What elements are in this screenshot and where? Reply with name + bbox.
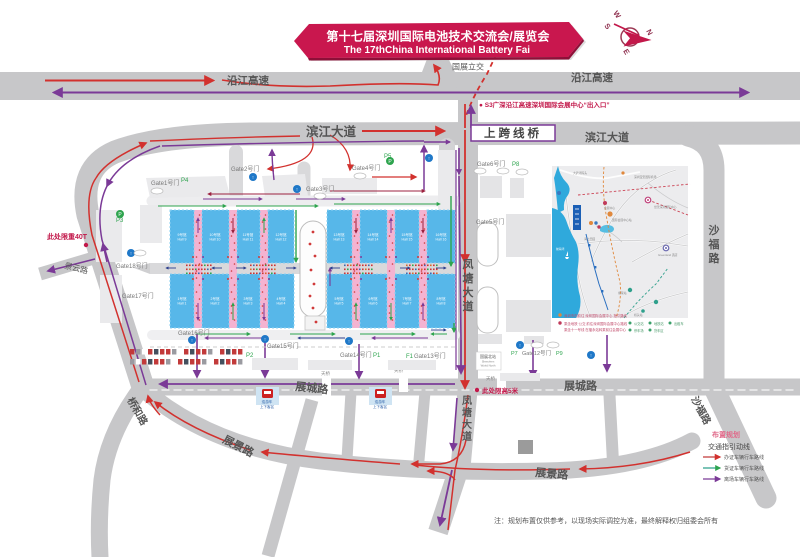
- svg-text:上下客区: 上下客区: [260, 404, 275, 409]
- svg-text:道: 道: [462, 430, 472, 443]
- svg-text:货证车辆行车路线: 货证车辆行车路线: [724, 465, 764, 472]
- svg-text:Gate18号门: Gate18号门: [116, 262, 148, 270]
- svg-text:沿江高速: 沿江高速: [227, 74, 269, 87]
- svg-text:Hall 2: Hall 2: [211, 302, 220, 306]
- svg-text:福: 福: [708, 237, 720, 251]
- svg-text:大: 大: [463, 285, 474, 299]
- svg-text:Hall 15: Hall 15: [402, 238, 413, 242]
- svg-text:7号馆: 7号馆: [403, 296, 412, 301]
- svg-text:停车场: 停车场: [634, 328, 644, 333]
- svg-text:上下客区: 上下客区: [373, 404, 388, 409]
- svg-text:沙: 沙: [709, 224, 720, 237]
- svg-text:道: 道: [463, 299, 474, 313]
- svg-text:Hall 13: Hall 13: [334, 238, 345, 242]
- svg-text:国展北站: 国展北站: [480, 353, 496, 359]
- svg-text:Gate14号门: Gate14号门: [340, 351, 372, 359]
- svg-text:12号馆: 12号馆: [276, 232, 287, 237]
- svg-text:↑: ↑: [519, 343, 522, 349]
- svg-text:↑: ↑: [428, 156, 431, 162]
- svg-text:乘坐地铁·公交 前往深圳国际会展中心路线: 乘坐地铁·公交 前往深圳国际会展中心路线: [564, 321, 628, 326]
- svg-text:P9: P9: [556, 351, 563, 357]
- svg-text:Hall 6: Hall 6: [369, 302, 378, 306]
- svg-text:塘: 塘: [462, 406, 472, 419]
- svg-text:Hall 5: Hall 5: [335, 302, 344, 306]
- svg-text:P1: P1: [373, 353, 381, 359]
- svg-text:1号馆: 1号馆: [178, 296, 187, 301]
- svg-text:↑: ↑: [348, 339, 351, 345]
- svg-text:凤: 凤: [463, 258, 474, 271]
- svg-text:巡游车: 巡游车: [262, 399, 273, 404]
- svg-text:Gate13号门: Gate13号门: [414, 352, 446, 360]
- svg-text:Gate12号门: Gate12号门: [522, 349, 551, 357]
- svg-text:↑: ↑: [590, 353, 593, 359]
- svg-text:3号馆: 3号馆: [244, 296, 253, 301]
- svg-text:10号馆: 10号馆: [210, 232, 221, 237]
- svg-text:9号馆: 9号馆: [178, 232, 187, 237]
- svg-text:第十七届深圳国际电池技术交流会/展览会: 第十七届深圳国际电池技术交流会/展览会: [326, 29, 550, 44]
- svg-text:布置规划: 布置规划: [712, 430, 740, 439]
- svg-text:5号馆: 5号馆: [335, 296, 344, 301]
- svg-text:塘尾站: 塘尾站: [618, 291, 627, 295]
- svg-text:Hall 12: Hall 12: [276, 238, 287, 242]
- svg-text:Hall 8: Hall 8: [437, 302, 446, 306]
- svg-text:6号馆: 6号馆: [369, 296, 378, 301]
- svg-text:World North: World North: [481, 364, 496, 368]
- svg-text:F1: F1: [406, 354, 414, 360]
- svg-text:Gate4号门: Gate4号门: [352, 164, 380, 172]
- svg-text:4号馆: 4号馆: [277, 296, 286, 301]
- svg-text:P4: P4: [181, 178, 189, 184]
- svg-text:海上田园: 海上田园: [584, 237, 595, 241]
- svg-text:Hall 11: Hall 11: [243, 238, 254, 242]
- svg-text:Hall 9: Hall 9: [178, 238, 187, 242]
- svg-text:货车区: 货车区: [654, 328, 664, 333]
- svg-text:↑: ↑: [130, 251, 133, 257]
- svg-text:↑: ↑: [191, 338, 194, 344]
- svg-text:Hall 14: Hall 14: [368, 238, 379, 242]
- svg-text:Gate6号门: Gate6号门: [477, 160, 505, 168]
- svg-text:Gate2号门: Gate2号门: [231, 165, 259, 173]
- svg-text:The 17thChina International Ba: The 17thChina International Battery Fai: [344, 45, 530, 56]
- svg-text:深圳市内前往 深圳国际会展中心 指引路线: 深圳市内前往 深圳国际会展中心 指引路线: [564, 313, 628, 318]
- svg-text:↑: ↑: [264, 337, 267, 343]
- svg-text:Hall 7: Hall 7: [403, 302, 412, 306]
- svg-text:Hall 3: Hall 3: [244, 302, 253, 306]
- svg-text:前海湾: 前海湾: [556, 247, 565, 251]
- svg-text:凤: 凤: [462, 395, 472, 407]
- svg-text:Gate5号门: Gate5号门: [476, 218, 504, 226]
- svg-text:沿江高速: 沿江高速: [571, 71, 613, 84]
- svg-text:离场车辆行车路线: 离场车辆行车路线: [724, 476, 764, 483]
- svg-text:桥头站: 桥头站: [634, 313, 643, 317]
- svg-text:此处限重40T: 此处限重40T: [47, 232, 88, 241]
- svg-text:13号馆: 13号馆: [334, 232, 345, 237]
- svg-text:↑: ↑: [252, 175, 255, 181]
- svg-text:15号馆: 15号馆: [402, 232, 413, 237]
- svg-text:Hall 10: Hall 10: [210, 238, 221, 242]
- svg-text:出租车: 出租车: [674, 321, 684, 326]
- svg-text:● S3广深沿江高速深圳国际会展中心“出入口”: ● S3广深沿江高速深圳国际会展中心“出入口”: [479, 100, 610, 109]
- svg-text:会展中心: 会展中心: [604, 206, 615, 210]
- svg-text:乘坐十一号线 在福永站转乘前往会展中心: 乘坐十一号线 在福永站转乘前往会展中心: [564, 327, 627, 332]
- svg-text:巡游车: 巡游车: [375, 399, 386, 404]
- svg-text:世茂深港国际中心: 世茂深港国际中心: [654, 205, 677, 209]
- svg-text:P8: P8: [512, 162, 520, 168]
- svg-text:Gate17号门: Gate17号门: [122, 292, 154, 300]
- svg-text:P7: P7: [511, 351, 518, 357]
- svg-text:Gate3号门: Gate3号门: [306, 185, 334, 193]
- svg-text:8号馆: 8号馆: [437, 296, 446, 301]
- svg-text:上跨线桥: 上跨线桥: [484, 126, 542, 140]
- svg-text:大: 大: [462, 418, 472, 431]
- svg-text:Hall 1: Hall 1: [178, 302, 187, 306]
- svg-text:交通指引动线: 交通指引动线: [708, 442, 750, 451]
- svg-text:展城路: 展城路: [563, 379, 598, 393]
- svg-text:P2: P2: [246, 353, 254, 359]
- svg-text:16号馆: 16号馆: [436, 232, 447, 237]
- svg-text:此处限高5米: 此处限高5米: [482, 386, 519, 395]
- svg-text:P3: P3: [116, 218, 124, 224]
- svg-text:Gate1号门: Gate1号门: [151, 179, 179, 187]
- svg-text:2号馆: 2号馆: [211, 296, 220, 301]
- svg-text:天桥: 天桥: [486, 375, 495, 382]
- svg-text:公交站: 公交站: [634, 321, 644, 326]
- svg-text:大铲湾码头: 大铲湾码头: [573, 171, 587, 175]
- svg-text:地铁站: 地铁站: [654, 321, 664, 326]
- svg-text:塘: 塘: [463, 271, 474, 285]
- svg-text:办证车辆行车路线: 办证车辆行车路线: [724, 454, 764, 461]
- svg-text:Gate15号门: Gate15号门: [267, 342, 299, 350]
- svg-text:Gate16号门: Gate16号门: [178, 329, 210, 337]
- svg-text:Hall 4: Hall 4: [277, 302, 286, 306]
- svg-text:天桥: 天桥: [321, 370, 330, 377]
- svg-text:国展立交: 国展立交: [452, 62, 484, 72]
- svg-text:滨江大道: 滨江大道: [306, 124, 357, 139]
- svg-text:滨江大道: 滨江大道: [585, 130, 629, 144]
- svg-text:深圳宝安国际机场: 深圳宝安国际机场: [634, 175, 657, 179]
- svg-text:路: 路: [709, 251, 721, 265]
- svg-text:14号馆: 14号馆: [368, 232, 379, 237]
- svg-text:Hall 16: Hall 16: [436, 238, 447, 242]
- svg-text:11号馆: 11号馆: [243, 232, 254, 237]
- svg-text:↑: ↑: [296, 187, 299, 193]
- svg-text:国际会展中心站: 国际会展中心站: [612, 218, 632, 222]
- svg-text:注：规划布置仅供参考，以现场实际调控为准，最终解释权归组委会: 注：规划布置仅供参考，以现场实际调控为准，最终解释权归组委会所有: [494, 516, 718, 525]
- svg-text:Greenland 酒店: Greenland 酒店: [658, 253, 678, 257]
